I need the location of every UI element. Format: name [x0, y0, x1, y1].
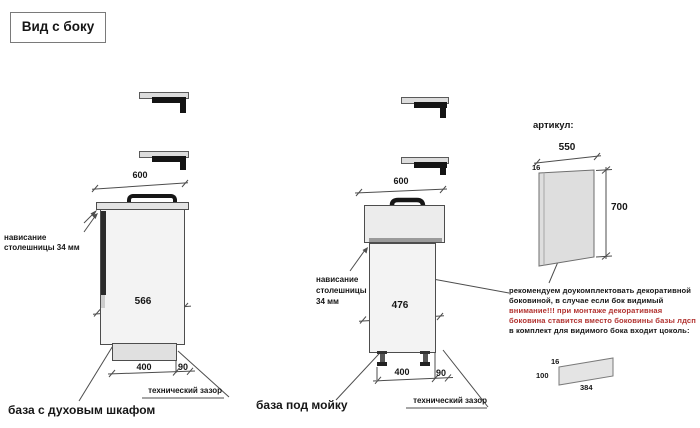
shelf-bracket-icon — [180, 156, 186, 170]
dim-width: 550 — [551, 142, 583, 154]
tech-gap-label: технический зазор — [138, 386, 222, 396]
dim-depth: 566 — [127, 296, 159, 308]
tech-gap-label: технический зазор — [403, 396, 487, 406]
dim-depth: 476 — [384, 300, 416, 312]
side-view-technical-drawing: Вид с боку 600 566 400 90 нависание стол… — [0, 0, 700, 428]
note-line-1: рекомендуем доукомплектовать декоративно… — [509, 286, 691, 295]
sink-bottom-strip — [369, 238, 442, 242]
drawing-caption: база с духовым шкафом — [8, 403, 155, 417]
view-title: Вид с боку — [22, 19, 94, 35]
dim-a: 400 — [384, 367, 420, 378]
note-line-2: боковиной, в случае если бок видимый — [509, 296, 663, 305]
drawing-caption: база под мойку — [256, 398, 348, 412]
dim-top: 600 — [122, 170, 158, 181]
overhang-label: нависание столешницы 34 мм — [4, 233, 80, 252]
warning-line-1: внимание!!! при монтаже декоративная — [509, 306, 662, 315]
dim-b: 90 — [171, 362, 195, 373]
plinth-dim-thickness: 16 — [551, 357, 559, 366]
plinth-panel — [559, 358, 613, 385]
dim-b: 90 — [430, 368, 452, 379]
cabinet-body — [100, 209, 185, 345]
dim-height: 700 — [611, 202, 628, 214]
dim-a: 400 — [126, 362, 162, 373]
overhang-label: нависание столешницы 34 мм — [316, 274, 367, 307]
oven-door-lower-edge — [101, 295, 105, 308]
note-line-3: в комплект для видимого бока входит цоко… — [509, 326, 690, 335]
plinth — [112, 343, 177, 361]
plinth-dim-height: 100 — [536, 371, 549, 380]
leg-icon — [420, 362, 430, 366]
shelf-bracket-icon — [180, 97, 186, 113]
articul-label: артикул: — [533, 120, 574, 131]
dim-thickness: 16 — [532, 163, 540, 172]
oven-door-edge — [101, 211, 106, 295]
shelf-bracket-icon — [440, 162, 446, 175]
plinth-dim-length: 384 — [580, 383, 593, 392]
warning-line-2: боковина ставится вместо боковины базы л… — [509, 316, 696, 325]
cabinet-body — [369, 243, 436, 353]
decorative-side-panel — [539, 170, 594, 266]
leg-icon — [377, 362, 387, 366]
view-title-box: Вид с боку — [10, 12, 106, 43]
shelf-bracket-icon — [440, 102, 446, 118]
dim-top: 600 — [383, 176, 419, 187]
